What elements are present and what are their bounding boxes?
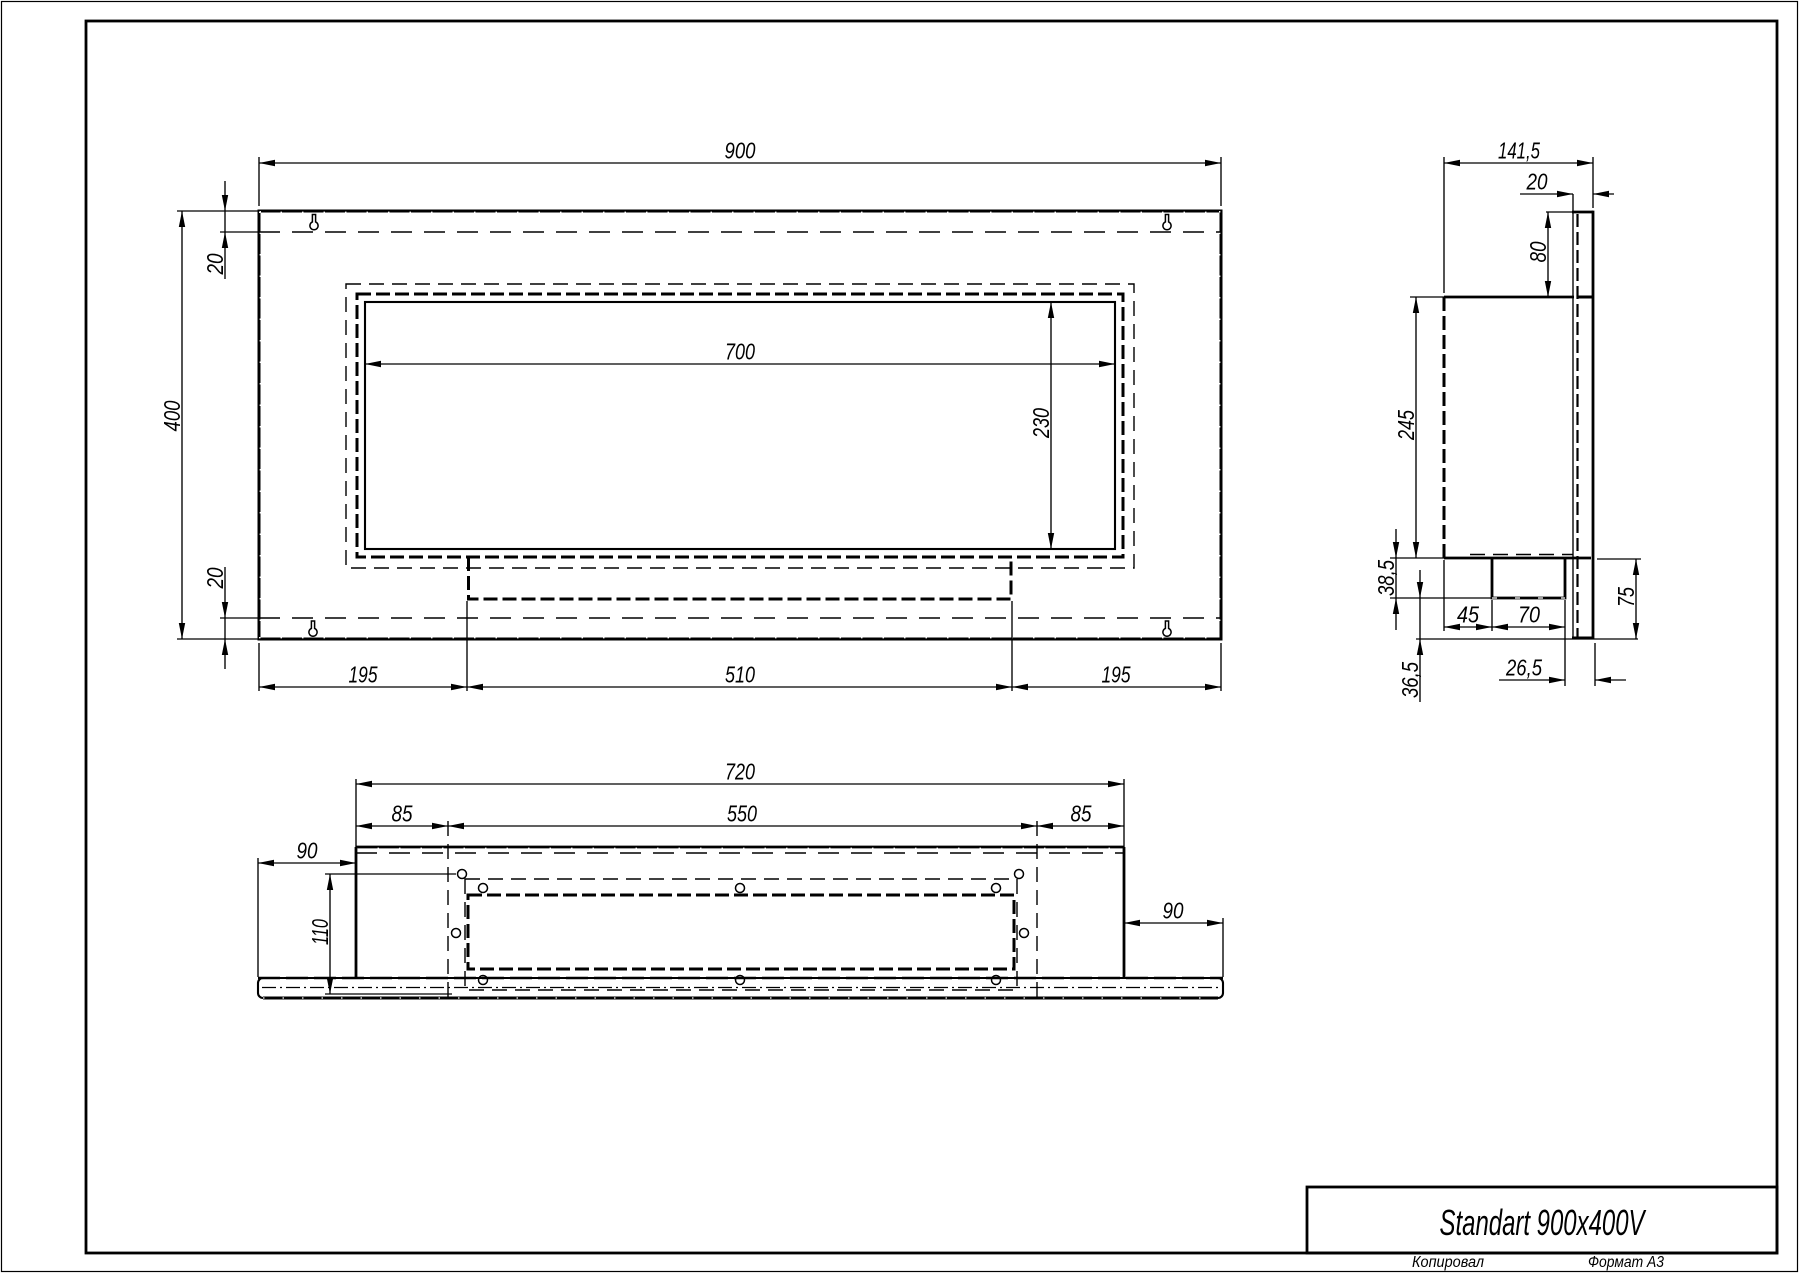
svg-text:26,5: 26,5 — [1505, 655, 1542, 681]
svg-text:Копировал: Копировал — [1412, 1254, 1484, 1271]
svg-text:245: 245 — [1393, 410, 1419, 441]
svg-text:45: 45 — [1457, 602, 1479, 628]
svg-text:85: 85 — [1071, 801, 1092, 827]
svg-text:400: 400 — [159, 400, 185, 431]
svg-text:700: 700 — [725, 339, 755, 365]
svg-text:720: 720 — [725, 759, 755, 785]
svg-text:70: 70 — [1518, 602, 1540, 628]
svg-text:550: 550 — [727, 801, 757, 827]
svg-text:20: 20 — [1526, 169, 1548, 195]
svg-text:38,5: 38,5 — [1373, 560, 1399, 596]
svg-text:75: 75 — [1613, 587, 1639, 607]
svg-text:141,5: 141,5 — [1498, 138, 1540, 164]
svg-text:230: 230 — [1028, 408, 1054, 439]
svg-text:Формат А3: Формат А3 — [1588, 1254, 1664, 1271]
svg-text:80: 80 — [1525, 241, 1551, 262]
svg-text:510: 510 — [725, 662, 755, 688]
svg-text:20: 20 — [202, 253, 228, 275]
svg-text:110: 110 — [307, 919, 333, 945]
svg-text:900: 900 — [725, 138, 756, 164]
svg-text:195: 195 — [349, 662, 378, 688]
svg-text:20: 20 — [202, 567, 228, 589]
svg-text:Standart 900x400V: Standart 900x400V — [1440, 1202, 1647, 1243]
svg-text:90: 90 — [297, 838, 318, 864]
svg-text:85: 85 — [392, 801, 413, 827]
svg-text:195: 195 — [1102, 662, 1131, 688]
svg-text:90: 90 — [1163, 898, 1184, 924]
svg-text:36,5: 36,5 — [1397, 662, 1423, 698]
